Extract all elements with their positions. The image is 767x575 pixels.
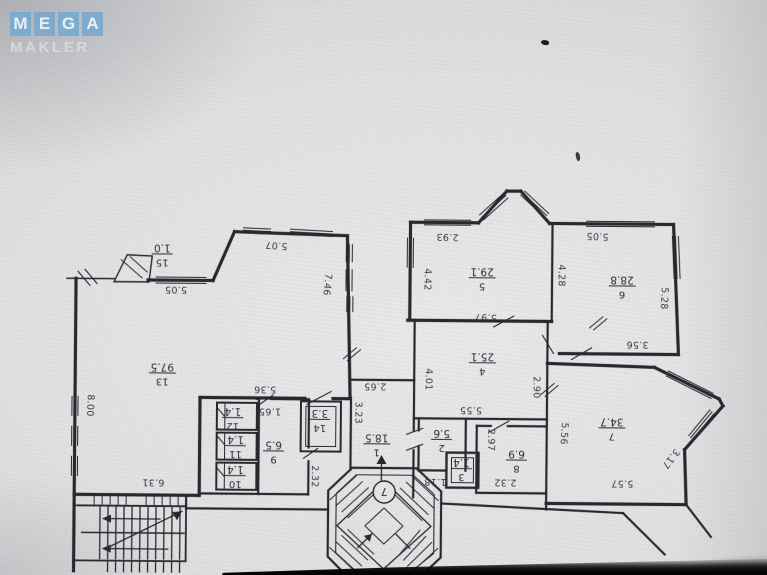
floor-plan-drawing: 7 [0, 0, 767, 575]
spiral-stair [327, 455, 441, 575]
logo-tile-m: M [10, 12, 31, 36]
logo-tile-e: E [34, 12, 55, 36]
balcony [67, 254, 152, 286]
dimension-label-5.56: 5.56 [558, 422, 570, 445]
room-label-9: 96.5 [263, 439, 284, 464]
logo-subtitle: MAKLER [10, 39, 103, 56]
dimension-label-4.28: 4.28 [556, 264, 567, 286]
dimension-label-6.31: 6.31 [142, 476, 164, 487]
dimension-label-1.65: 1.65 [259, 405, 281, 416]
dimension-label-4.42: 4.42 [421, 268, 432, 290]
window-hatches [71, 187, 716, 511]
room-label-10: 101.4 [225, 463, 246, 488]
dimension-label-3.23: 3.23 [352, 402, 363, 424]
dimension-label-8.00: 8.00 [84, 394, 96, 417]
room-label-1: 118.5 [363, 431, 391, 456]
logo-row: M E G A [10, 12, 103, 36]
megamakler-watermark: M E G A MAKLER [10, 12, 103, 56]
room-label-7: 734.7 [598, 415, 626, 440]
dimension-label-5.57: 5.57 [611, 477, 633, 488]
logo-tile-g: G [58, 12, 79, 36]
dimension-label-5.55: 5.55 [460, 404, 482, 415]
dimension-label-4.01: 4.01 [423, 368, 434, 390]
logo-tile-a: A [82, 12, 103, 36]
room-label-2: 25.6 [431, 427, 452, 452]
dimension-label-2.90: 2.90 [531, 376, 542, 398]
dimension-label-1.18: 1.18 [424, 476, 446, 487]
room-label-11: 111.4 [225, 433, 246, 458]
dimension-label-5.36: 5.36 [254, 383, 276, 394]
dimension-label-3.56: 3.56 [626, 339, 648, 350]
dimension-label-5.28: 5.28 [658, 287, 670, 310]
dimension-label-5.05: 5.05 [165, 284, 187, 295]
photo-of-floor-plan: M E G A MAKLER [0, 0, 767, 575]
room-label-13: 1397.5 [148, 361, 176, 386]
dimension-label-5.97: 5.97 [474, 311, 497, 323]
room-label-8: 86.9 [506, 448, 527, 473]
dimension-label-5.05: 5.05 [586, 230, 609, 242]
room-label-3: 31.4 [451, 456, 472, 481]
dimension-label-2.65: 2.65 [364, 380, 386, 391]
dimension-label-2.93: 2.93 [436, 231, 459, 243]
plan-wrapper: 7 118.525.631.4425.1529.1628.8734.786.99… [0, 0, 767, 575]
dimension-label-2.32: 2.32 [494, 476, 516, 487]
dimension-label-5.07: 5.07 [265, 239, 288, 251]
room-label-12: 121.4 [222, 405, 243, 430]
room-label-14: 143.3 [309, 407, 330, 432]
room-label-4: 425.1 [469, 350, 497, 375]
room-label-5: 529.1 [468, 265, 496, 290]
room-label-15: 151.0 [152, 242, 173, 267]
dimension-label-2.32: 2.32 [309, 465, 320, 487]
room-label-6: 628.8 [608, 274, 636, 299]
dimension-label-2.97: 2.97 [485, 429, 496, 451]
stair-badge-number: 7 [381, 485, 388, 498]
straight-stair [74, 494, 187, 572]
